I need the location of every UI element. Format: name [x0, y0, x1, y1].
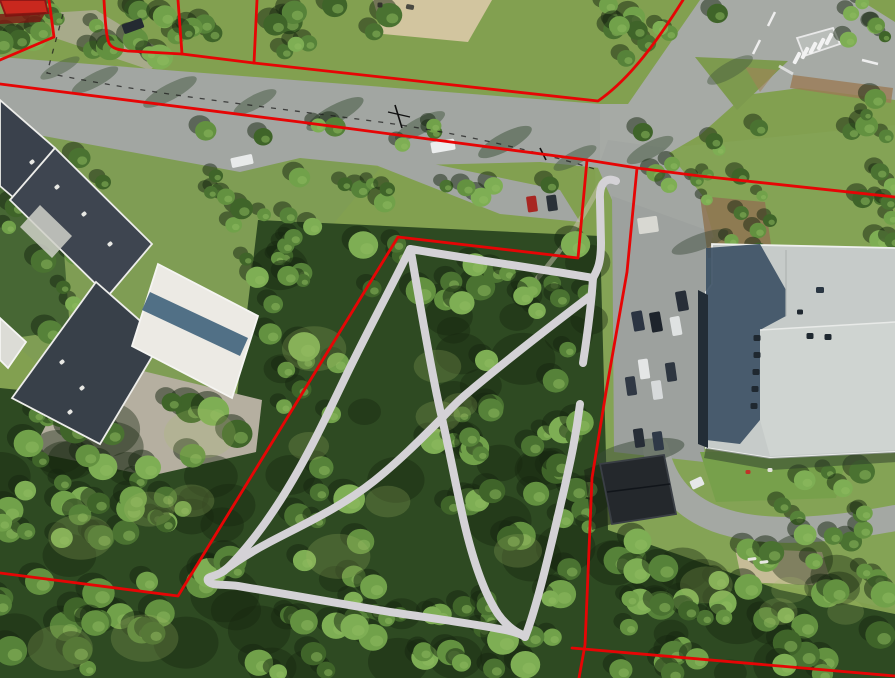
- house-bottom-right: [600, 455, 676, 524]
- sunlit-patch: [48, 514, 113, 559]
- lawn-object-red: [746, 470, 751, 474]
- aerial-map-image: [0, 0, 895, 678]
- roof-vent: [751, 403, 758, 409]
- sunlit-patch: [282, 326, 346, 371]
- playground-equipment: [378, 3, 383, 8]
- office-roof-light-section: [760, 322, 895, 456]
- roof-vent: [752, 386, 759, 392]
- aerial-map[interactable]: [0, 0, 895, 678]
- forest-shade: [348, 398, 381, 425]
- sunlit-patch: [111, 614, 179, 661]
- sunlit-patch: [168, 485, 215, 518]
- roof-vent: [754, 352, 761, 358]
- forest-shade: [437, 317, 470, 344]
- roof-vent: [825, 334, 832, 340]
- sunlit-patch: [680, 566, 733, 603]
- sunlit-patch: [827, 599, 864, 625]
- sunlit-patch: [365, 486, 410, 518]
- roof-vent: [797, 310, 803, 315]
- sunlit-patch: [164, 409, 236, 459]
- office-west-wall-shadow: [698, 290, 708, 448]
- roof-vent: [807, 333, 814, 339]
- sunlit-patch: [494, 534, 542, 568]
- roof-vent: [816, 287, 824, 293]
- roof-vent: [753, 369, 760, 375]
- shed-right: [637, 216, 659, 235]
- sunlit-patch: [306, 534, 370, 579]
- sunlit-patch: [771, 577, 808, 603]
- lawn-object-white: [768, 468, 773, 472]
- sunlit-patch: [124, 492, 174, 527]
- roof-vent: [754, 335, 761, 341]
- sunlit-patch: [28, 625, 93, 671]
